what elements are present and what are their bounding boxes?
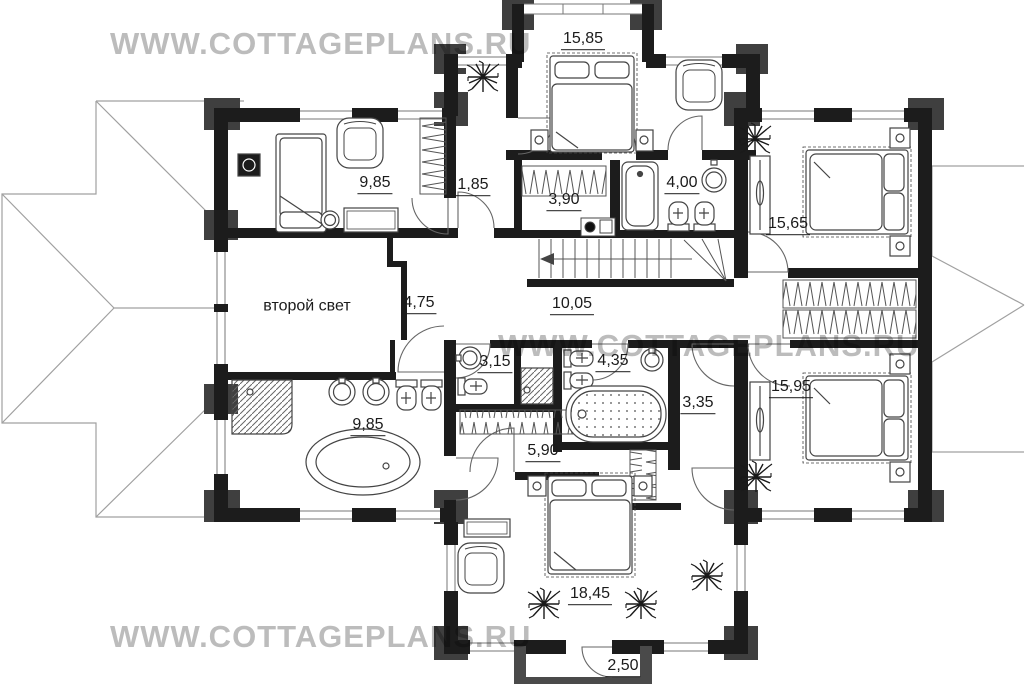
bedroom-bottom-right-furniture	[750, 354, 911, 482]
room-area-label: 15,95	[769, 378, 813, 398]
watermark-middle: WWW.COTTAGEPLANS.RU	[498, 328, 919, 364]
sink-icon	[600, 220, 612, 233]
watermark-bottom: WWW.COTTAGEPLANS.RU	[110, 619, 531, 655]
watermark-top: WWW.COTTAGEPLANS.RU	[110, 26, 531, 62]
room-area-label: 15,85	[561, 30, 605, 50]
vent-icon	[238, 154, 260, 176]
plant-icon	[691, 560, 723, 591]
door-wardrobe-bottom	[470, 428, 514, 472]
bathroom-bottom-left-fixtures	[232, 378, 442, 495]
bathroom-top-fixtures	[622, 160, 726, 231]
room-area-label: 5,90	[525, 442, 560, 462]
stove-icon	[585, 222, 595, 232]
wardrobe-icon	[783, 280, 916, 308]
nightstand-icon	[890, 462, 910, 482]
room-area-label: 1,85	[455, 176, 490, 196]
door-hall-top	[458, 192, 494, 228]
room-area-label: 9,85	[357, 174, 392, 194]
nightstand-icon	[531, 130, 548, 151]
bedroom-top-right-furniture	[750, 128, 911, 256]
room-area-label: 4,75	[401, 294, 436, 314]
armchair-icon	[676, 60, 722, 110]
bedroom-top-center-furniture	[531, 53, 722, 153]
plant-icon	[528, 588, 560, 619]
room-area-label: 3,35	[680, 394, 715, 414]
second-light-partition	[390, 233, 404, 340]
second-light-label: второй свет	[261, 298, 352, 317]
room-area-label: 2,50	[605, 657, 640, 677]
room-area-label: 10,05	[550, 295, 594, 315]
shower-icon	[232, 380, 292, 434]
counter-unit	[581, 218, 615, 236]
door-bathroom-top	[668, 116, 702, 150]
shower-icon	[521, 368, 553, 404]
roof-outline-right	[932, 166, 1024, 452]
stairs-direction-arrow	[540, 253, 554, 265]
table-icon	[344, 208, 398, 232]
room-area-label: 3,90	[546, 191, 581, 211]
room-area-label: 15,65	[766, 215, 810, 235]
staircase	[539, 239, 726, 281]
nightstand-icon	[890, 128, 910, 148]
nightstand-icon	[890, 236, 910, 256]
armchair-icon	[337, 118, 383, 168]
wardrobe-icon	[420, 118, 446, 194]
door-bedroom-top-right	[748, 232, 788, 272]
nightstand-icon	[636, 130, 653, 151]
stool-icon	[321, 211, 339, 229]
plant-icon	[625, 588, 657, 619]
bedroom-bottom-center-furniture	[458, 473, 652, 593]
armchair-icon	[458, 543, 504, 593]
bathtub-icon	[306, 429, 420, 495]
nightstand-icon	[528, 476, 546, 496]
floor-plan-page: 15,85 9,85 1,85 3,90 4,00 15,65 второй с…	[0, 0, 1025, 687]
room-area-label: 4,00	[664, 174, 699, 194]
nightstand-icon	[634, 476, 652, 496]
room-area-label: 18,45	[568, 585, 612, 605]
roof-outline-left	[2, 101, 244, 517]
room-area-label: 9,85	[350, 416, 385, 436]
